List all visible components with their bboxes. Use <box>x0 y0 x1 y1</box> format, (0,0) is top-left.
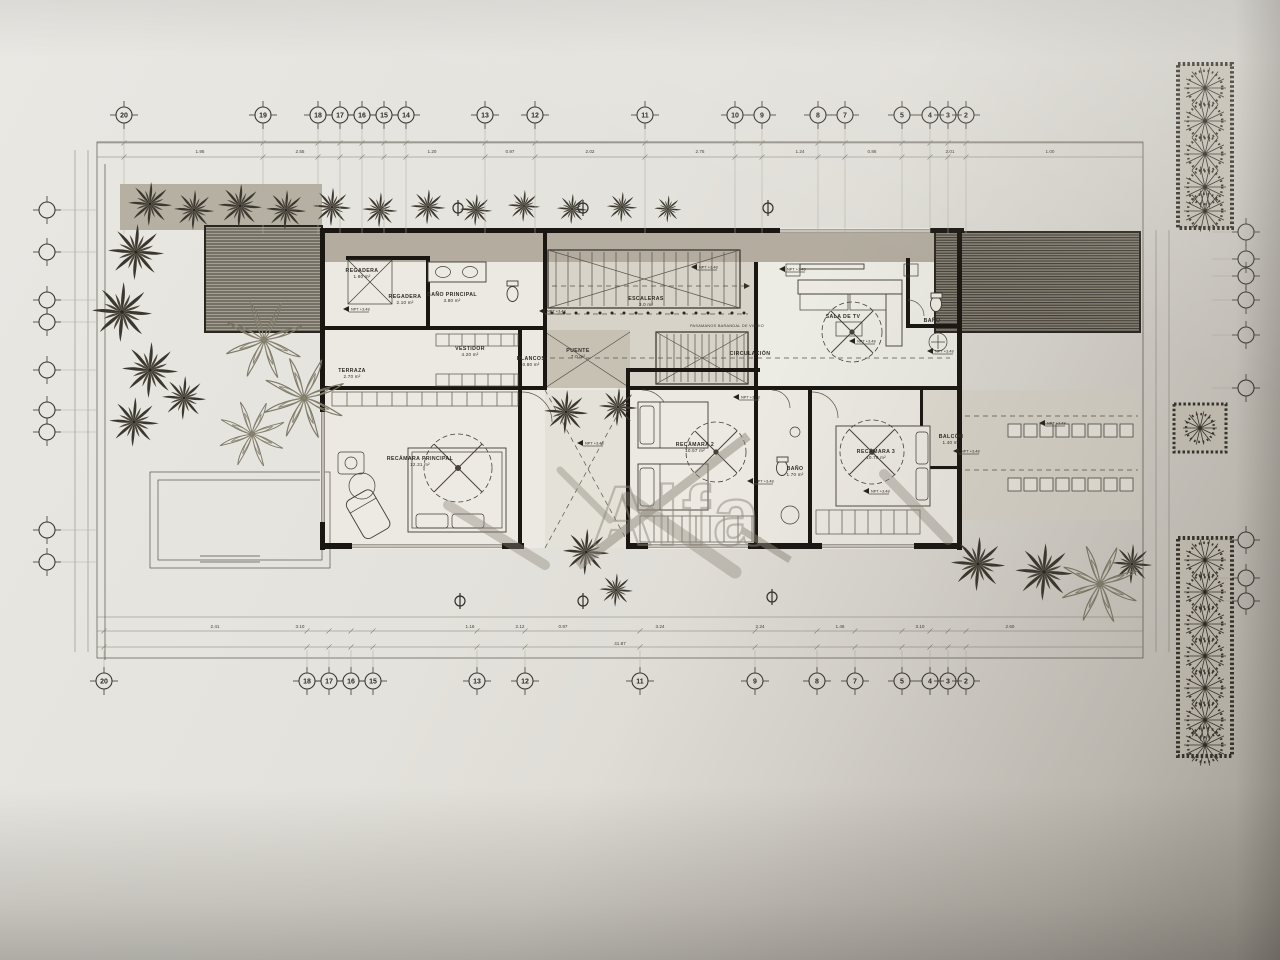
dimension-text: 2.01 <box>946 149 955 154</box>
svg-text:9: 9 <box>753 678 757 685</box>
grid-bubble <box>1232 321 1260 349</box>
grid-bubble: 2 <box>952 101 980 129</box>
svg-text:7: 7 <box>843 112 847 119</box>
dimension-text: 2.24 <box>756 624 765 629</box>
room-label-bano-mid: BAÑO1.70 m² <box>787 465 804 477</box>
svg-text:NPT +3.48: NPT +3.48 <box>699 265 718 270</box>
dimension-text: 1.20 <box>428 149 437 154</box>
left-terrace <box>150 472 330 568</box>
svg-text:16: 16 <box>347 678 355 685</box>
svg-text:17: 17 <box>325 678 333 685</box>
double-sink <box>428 262 486 282</box>
svg-text:9: 9 <box>760 112 764 119</box>
dimension-text: 2.02 <box>586 149 595 154</box>
grid-bubble: 14 <box>392 101 420 129</box>
grid-bubble <box>33 238 61 266</box>
grid-bubble <box>1232 262 1260 290</box>
dimension-text: 1.95 <box>196 149 205 154</box>
svg-text:10: 10 <box>731 112 739 119</box>
total-dimension: 41.87 <box>614 641 626 646</box>
room-label-circulacion: CIRCULACIÓN <box>730 349 771 357</box>
svg-text:15: 15 <box>369 678 377 685</box>
grid-bubble: 11 <box>626 667 654 695</box>
svg-text:3: 3 <box>946 678 950 685</box>
dimension-text: 0.97 <box>559 624 568 629</box>
room-label-bano-tv: BAÑO <box>924 317 941 324</box>
svg-text:NPT +3.48: NPT +3.48 <box>857 339 876 344</box>
svg-text:8: 8 <box>816 112 820 119</box>
room-label-sala-de-tv: SALA DE TV <box>826 314 861 320</box>
grid-bubble: 13 <box>471 101 499 129</box>
dimension-text: 1.24 <box>796 149 805 154</box>
dimension-text: 2.55 <box>296 149 305 154</box>
palm-tree-icon <box>109 397 159 447</box>
svg-text:NPT +3.48: NPT +3.48 <box>741 395 760 400</box>
grid-bubble <box>33 308 61 336</box>
palm-tree-icon <box>108 224 164 280</box>
grid-bubble: 12 <box>521 101 549 129</box>
svg-text:4: 4 <box>928 112 932 119</box>
grid-bubble: 13 <box>463 667 491 695</box>
dimension-text: 1.00 <box>1046 149 1055 154</box>
dimension-text: 2.12 <box>516 624 525 629</box>
svg-text:8: 8 <box>815 678 819 685</box>
dimension-text: 3.10 <box>296 624 305 629</box>
grid-bubble <box>1232 286 1260 314</box>
grid-bubble: 19 <box>249 101 277 129</box>
svg-text:20: 20 <box>100 678 108 685</box>
dimension-text: 3.24 <box>656 624 665 629</box>
left-pergola-roof <box>205 226 322 332</box>
grid-bubble <box>33 548 61 576</box>
photographed-floor-plan-sheet: REGADERA1.80 m² REGADERA2.10 m² BAÑO PRI… <box>0 0 1280 960</box>
svg-text:13: 13 <box>473 678 481 685</box>
toilet <box>931 293 943 312</box>
svg-text:18: 18 <box>303 678 311 685</box>
svg-text:NPT +3.48: NPT +3.48 <box>935 349 954 354</box>
palm-tree-icon <box>654 195 681 222</box>
hedge-strips <box>1174 64 1232 765</box>
palm-tree-icon <box>607 192 637 222</box>
grid-bubble: 20 <box>90 667 118 695</box>
dimension-text: 2.50 <box>1006 624 1015 629</box>
svg-text:NPT +3.48: NPT +3.48 <box>787 267 806 272</box>
grid-bubble: 11 <box>631 101 659 129</box>
svg-text:11: 11 <box>641 112 649 119</box>
grid-bubble: 15 <box>359 667 387 695</box>
svg-text:NPT +3.48: NPT +3.48 <box>351 307 370 312</box>
svg-text:5: 5 <box>900 112 904 119</box>
floor-plan-drawing: REGADERA1.80 m² REGADERA2.10 m² BAÑO PRI… <box>0 0 1280 770</box>
svg-text:7: 7 <box>853 678 857 685</box>
grid-bubble <box>33 418 61 446</box>
grid-bubble: 2 <box>952 667 980 695</box>
dimension-text: 1.16 <box>466 624 475 629</box>
grid-bubble <box>1232 374 1260 402</box>
watermark-text: Alfa <box>592 469 763 563</box>
svg-text:18: 18 <box>314 112 322 119</box>
grid-bubble: 8 <box>804 101 832 129</box>
toilet <box>507 281 518 302</box>
grid-bubble: 8 <box>803 667 831 695</box>
grid-bubble: 12 <box>511 667 539 695</box>
palm-tree-icon <box>122 342 178 398</box>
palm-tree-icon <box>1112 544 1152 584</box>
dimension-text: 0.97 <box>506 149 515 154</box>
svg-text:NPT +3.48: NPT +3.48 <box>547 309 566 314</box>
svg-text:16: 16 <box>358 112 366 119</box>
svg-text:2: 2 <box>964 678 968 685</box>
grid-bubble <box>1232 245 1260 273</box>
svg-text:3: 3 <box>946 112 950 119</box>
svg-text:5: 5 <box>900 678 904 685</box>
svg-text:11: 11 <box>636 678 644 685</box>
svg-text:13: 13 <box>481 112 489 119</box>
svg-text:NPT +3.48: NPT +3.48 <box>961 449 980 454</box>
title-block: arqone PLANTA ALTA Residencial Cumbres, … <box>0 770 1280 830</box>
svg-text:NPT +3.48: NPT +3.48 <box>585 441 604 446</box>
grid-bubble: 7 <box>831 101 859 129</box>
grid-bubble: 5 <box>888 667 916 695</box>
grid-bubble <box>33 196 61 224</box>
grid-bubble: 5 <box>888 101 916 129</box>
palm-tree-icon <box>599 573 633 607</box>
svg-text:NPT +3.48: NPT +3.48 <box>871 489 890 494</box>
grid-bubble <box>1232 526 1260 554</box>
svg-text:14: 14 <box>402 112 410 119</box>
grid-bubble: 20 <box>110 101 138 129</box>
grid-bubble: 10 <box>721 101 749 129</box>
palm-tree-icon <box>1015 543 1073 601</box>
handrail-note: PASAMANOS BARANDAL DE VIDRIO <box>690 324 764 328</box>
right-pergola-roof <box>935 232 1140 332</box>
dimension-text: 2.41 <box>211 624 220 629</box>
grid-bubble <box>1232 587 1260 615</box>
dimension-text: 2.75 <box>696 149 705 154</box>
grid-bubble: 7 <box>841 667 869 695</box>
grid-bubble <box>33 356 61 384</box>
palm-tree-icon <box>219 401 284 466</box>
svg-text:12: 12 <box>521 678 529 685</box>
palm-tree-icon <box>410 189 445 224</box>
grid-bubble: 9 <box>741 667 769 695</box>
svg-text:NPT +3.48: NPT +3.48 <box>1047 421 1066 426</box>
svg-text:15: 15 <box>380 112 388 119</box>
grid-bubble <box>33 516 61 544</box>
svg-text:4: 4 <box>928 678 932 685</box>
palm-tree-icon <box>92 282 152 342</box>
svg-text:19: 19 <box>259 112 267 119</box>
svg-text:12: 12 <box>531 112 539 119</box>
grid-bubble <box>1232 218 1260 246</box>
palm-tree-icon <box>460 194 492 226</box>
svg-text:17: 17 <box>336 112 344 119</box>
svg-text:20: 20 <box>120 112 128 119</box>
dimension-text: 3.10 <box>916 624 925 629</box>
grid-bubble: 9 <box>748 101 776 129</box>
palm-tree-icon <box>162 376 206 420</box>
dimension-text: 0.86 <box>868 149 877 154</box>
svg-text:2: 2 <box>964 112 968 119</box>
dimension-text: 1.46 <box>836 624 845 629</box>
palm-tree-icon <box>362 192 397 227</box>
